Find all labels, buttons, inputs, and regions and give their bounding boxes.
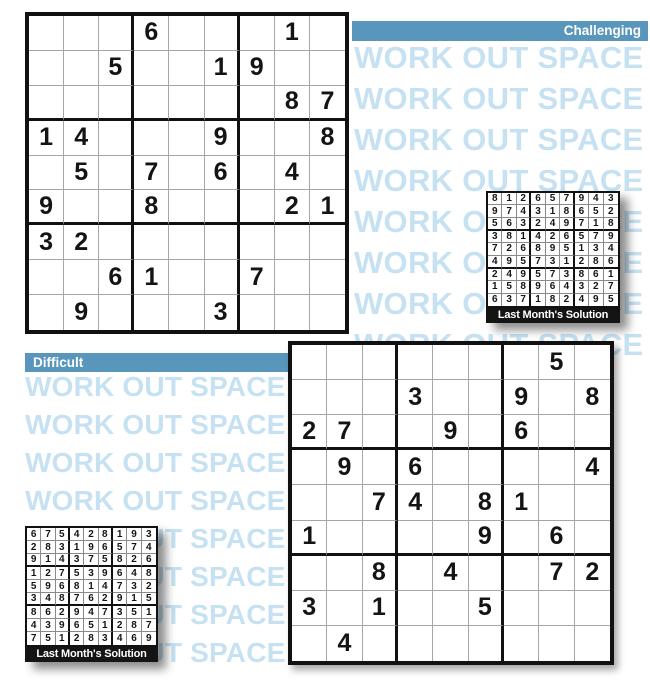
sudoku-cell[interactable] <box>205 86 240 121</box>
sudoku-cell[interactable] <box>240 86 275 121</box>
sudoku-cell: 2 <box>488 269 502 281</box>
sudoku-cell[interactable] <box>64 260 99 295</box>
watermark-text: WORK OUT SPACE <box>25 368 289 406</box>
sudoku-cell[interactable]: 9 <box>240 51 275 86</box>
sudoku-cell[interactable] <box>99 16 134 51</box>
sudoku-cell[interactable]: 8 <box>310 121 345 156</box>
sudoku-cell[interactable] <box>29 156 64 191</box>
sudoku-cell: 5 <box>517 256 531 269</box>
sudoku-cell: 4 <box>127 567 141 580</box>
sudoku-cell: 8 <box>604 218 618 231</box>
sudoku-cell[interactable] <box>433 450 468 485</box>
sudoku-cell[interactable]: 4 <box>327 626 362 661</box>
sudoku-cell: 7 <box>589 231 603 243</box>
sudoku-cell[interactable] <box>539 591 574 626</box>
sudoku-cell[interactable] <box>363 521 398 556</box>
sudoku-cell[interactable] <box>469 415 504 450</box>
solution-box-difficult: 6754281932831965749143758261275396485968… <box>25 526 158 662</box>
sudoku-cell[interactable]: 6 <box>205 156 240 191</box>
sudoku-cell: 2 <box>27 541 41 554</box>
solution-caption-challenging: Last Month's Solution <box>486 308 620 323</box>
sudoku-cell: 1 <box>99 619 113 632</box>
sudoku-cell[interactable] <box>205 225 240 260</box>
sudoku-cell: 3 <box>56 541 70 554</box>
sudoku-cell[interactable]: 9 <box>205 121 240 156</box>
sudoku-cell[interactable] <box>240 295 275 330</box>
sudoku-cell[interactable] <box>575 521 610 556</box>
sudoku-cell: 1 <box>560 256 574 269</box>
sudoku-cell[interactable]: 2 <box>64 225 99 260</box>
sudoku-cell[interactable] <box>363 380 398 415</box>
sudoku-cell: 1 <box>589 218 603 231</box>
sudoku-cell: 6 <box>27 528 41 541</box>
sudoku-cell[interactable] <box>504 450 539 485</box>
sudoku-cell: 4 <box>560 281 574 293</box>
sudoku-cell[interactable] <box>240 225 275 260</box>
watermark-text: WORK OUT SPACE <box>25 406 289 444</box>
sudoku-cell[interactable] <box>433 521 468 556</box>
sudoku-cell[interactable] <box>205 16 240 51</box>
sudoku-cell: 4 <box>70 528 84 541</box>
sudoku-cell[interactable] <box>169 51 204 86</box>
sudoku-cell[interactable] <box>134 51 169 86</box>
sudoku-cell: 1 <box>142 606 156 619</box>
sudoku-cell[interactable]: 3 <box>292 591 327 626</box>
sudoku-cell[interactable]: 6 <box>398 450 433 485</box>
sudoku-cell: 7 <box>502 205 516 217</box>
sudoku-cell: 5 <box>70 567 84 580</box>
sudoku-cell: 6 <box>41 606 55 619</box>
sudoku-cell[interactable]: 4 <box>433 556 468 591</box>
sudoku-cell[interactable] <box>99 190 134 225</box>
sudoku-cell: 5 <box>502 281 516 293</box>
sudoku-cell: 9 <box>575 193 589 205</box>
sudoku-cell[interactable]: 6 <box>504 415 539 450</box>
sudoku-cell[interactable] <box>469 450 504 485</box>
sudoku-cell[interactable] <box>539 415 574 450</box>
sudoku-cell[interactable] <box>504 345 539 380</box>
sudoku-cell: 3 <box>113 606 127 619</box>
sudoku-cell: 9 <box>517 269 531 281</box>
sudoku-cell[interactable] <box>398 556 433 591</box>
sudoku-cell: 6 <box>127 632 141 645</box>
sudoku-cell[interactable] <box>64 51 99 86</box>
sudoku-cell: 3 <box>502 294 516 306</box>
sudoku-cell[interactable]: 5 <box>469 591 504 626</box>
sudoku-cell[interactable] <box>29 51 64 86</box>
sudoku-cell: 7 <box>604 281 618 293</box>
sudoku-cell[interactable] <box>134 295 169 330</box>
sudoku-cell: 1 <box>113 528 127 541</box>
sudoku-cell: 5 <box>575 231 589 243</box>
sudoku-cell: 9 <box>84 541 98 554</box>
sudoku-cell[interactable] <box>327 521 362 556</box>
sudoku-cell[interactable]: 1 <box>29 121 64 156</box>
sudoku-cell[interactable] <box>398 345 433 380</box>
sudoku-cell[interactable]: 4 <box>575 450 610 485</box>
sudoku-cell: 7 <box>99 606 113 619</box>
sudoku-cell: 9 <box>546 243 560 255</box>
sudoku-cell: 2 <box>142 580 156 593</box>
sudoku-cell: 6 <box>488 294 502 306</box>
sudoku-cell: 8 <box>41 541 55 554</box>
sudoku-cell: 2 <box>560 294 574 306</box>
sudoku-cell: 4 <box>56 554 70 567</box>
sudoku-cell: 1 <box>127 593 141 606</box>
sudoku-cell[interactable]: 7 <box>134 156 169 191</box>
sudoku-cell[interactable] <box>539 450 574 485</box>
sudoku-cell[interactable] <box>292 485 327 520</box>
sudoku-cell: 7 <box>27 632 41 645</box>
sudoku-cell[interactable]: 7 <box>363 485 398 520</box>
sudoku-cell: 6 <box>589 269 603 281</box>
sudoku-cell[interactable]: 9 <box>64 295 99 330</box>
sudoku-cell[interactable] <box>539 485 574 520</box>
sudoku-cell[interactable] <box>539 380 574 415</box>
sudoku-cell: 5 <box>604 294 618 306</box>
sudoku-cell[interactable] <box>575 626 610 661</box>
sudoku-cell: 6 <box>531 193 545 205</box>
sudoku-cell[interactable] <box>134 225 169 260</box>
sudoku-cell[interactable]: 2 <box>275 190 310 225</box>
watermark-text: WORK OUT SPACE <box>354 78 650 119</box>
sudoku-cell: 1 <box>531 294 545 306</box>
sudoku-cell: 2 <box>546 231 560 243</box>
sudoku-cell[interactable] <box>363 626 398 661</box>
sudoku-cell: 8 <box>56 593 70 606</box>
sudoku-cell: 3 <box>84 567 98 580</box>
sudoku-cell: 3 <box>70 554 84 567</box>
sudoku-cell[interactable] <box>292 380 327 415</box>
sudoku-cell: 8 <box>546 294 560 306</box>
sudoku-cell: 1 <box>546 205 560 217</box>
sudoku-cell: 5 <box>142 593 156 606</box>
sudoku-cell: 7 <box>575 218 589 231</box>
sudoku-cell[interactable]: 1 <box>205 51 240 86</box>
sudoku-cell[interactable] <box>29 16 64 51</box>
sudoku-cell[interactable] <box>64 16 99 51</box>
sudoku-cell: 8 <box>560 205 574 217</box>
sudoku-cell[interactable]: 6 <box>99 260 134 295</box>
sudoku-cell[interactable] <box>169 260 204 295</box>
sudoku-cell: 8 <box>27 606 41 619</box>
sudoku-cell[interactable] <box>169 295 204 330</box>
sudoku-cell[interactable] <box>205 190 240 225</box>
sudoku-cell[interactable] <box>575 485 610 520</box>
sudoku-cell: 9 <box>502 256 516 269</box>
sudoku-cell[interactable] <box>310 51 345 86</box>
sudoku-cell[interactable]: 1 <box>134 260 169 295</box>
sudoku-cell: 7 <box>546 269 560 281</box>
sudoku-cell[interactable] <box>504 556 539 591</box>
sudoku-cell[interactable] <box>327 380 362 415</box>
sudoku-cell: 2 <box>502 243 516 255</box>
sudoku-cell: 7 <box>531 256 545 269</box>
sudoku-cell: 9 <box>70 606 84 619</box>
sudoku-cell[interactable] <box>327 556 362 591</box>
sudoku-cell[interactable] <box>539 626 574 661</box>
sudoku-cell[interactable] <box>433 380 468 415</box>
sudoku-cell[interactable]: 2 <box>292 415 327 450</box>
sudoku-cell[interactable]: 7 <box>327 415 362 450</box>
sudoku-cell[interactable] <box>398 415 433 450</box>
sudoku-cell: 9 <box>142 632 156 645</box>
sudoku-cell: 8 <box>502 231 516 243</box>
sudoku-cell[interactable]: 9 <box>29 190 64 225</box>
sudoku-cell: 5 <box>84 619 98 632</box>
sudoku-cell[interactable] <box>292 345 327 380</box>
sudoku-cell: 4 <box>84 606 98 619</box>
sudoku-cell[interactable] <box>310 16 345 51</box>
sudoku-cell[interactable] <box>433 591 468 626</box>
sudoku-cell[interactable] <box>469 380 504 415</box>
sudoku-cell: 5 <box>560 243 574 255</box>
sudoku-cell: 9 <box>113 593 127 606</box>
sudoku-cell[interactable] <box>310 156 345 191</box>
sudoku-cell[interactable]: 5 <box>539 345 574 380</box>
sudoku-cell[interactable]: 5 <box>64 156 99 191</box>
sudoku-cell[interactable] <box>469 626 504 661</box>
sudoku-cell[interactable] <box>504 591 539 626</box>
sudoku-cell: 2 <box>575 256 589 269</box>
sudoku-cell[interactable]: 1 <box>504 485 539 520</box>
sudoku-cell: 8 <box>113 554 127 567</box>
sudoku-cell[interactable] <box>29 86 64 121</box>
sudoku-cell[interactable] <box>469 556 504 591</box>
sudoku-cell: 8 <box>70 580 84 593</box>
sudoku-cell[interactable] <box>363 450 398 485</box>
sudoku-cell[interactable]: 7 <box>310 86 345 121</box>
watermark-text: WORK OUT SPACE <box>354 119 650 160</box>
sudoku-cell[interactable] <box>398 626 433 661</box>
sudoku-cell[interactable]: 9 <box>469 521 504 556</box>
sudoku-cell: 3 <box>531 205 545 217</box>
sudoku-cell: 4 <box>517 205 531 217</box>
sudoku-cell: 5 <box>589 205 603 217</box>
sudoku-cell: 4 <box>546 218 560 231</box>
sudoku-cell: 3 <box>560 269 574 281</box>
sudoku-cell[interactable]: 5 <box>99 51 134 86</box>
watermark-text: WORK OUT SPACE <box>25 444 289 482</box>
sudoku-cell: 2 <box>517 193 531 205</box>
sudoku-cell: 6 <box>560 231 574 243</box>
sudoku-cell[interactable] <box>292 556 327 591</box>
sudoku-cell[interactable] <box>64 86 99 121</box>
sudoku-cell: 2 <box>604 205 618 217</box>
sudoku-cell[interactable] <box>240 121 275 156</box>
sudoku-cell: 1 <box>488 281 502 293</box>
sudoku-cell[interactable] <box>504 626 539 661</box>
sudoku-cell[interactable]: 1 <box>310 190 345 225</box>
sudoku-cell[interactable] <box>29 295 64 330</box>
sudoku-cell[interactable] <box>99 225 134 260</box>
sudoku-cell: 7 <box>41 528 55 541</box>
sudoku-cell[interactable]: 8 <box>469 485 504 520</box>
sudoku-cell[interactable] <box>327 345 362 380</box>
sudoku-cell[interactable] <box>99 121 134 156</box>
sudoku-cell[interactable] <box>433 345 468 380</box>
sudoku-cell: 6 <box>99 541 113 554</box>
difficulty-bar-difficult: Difficult <box>25 353 288 372</box>
sudoku-cell: 2 <box>589 281 603 293</box>
sudoku-cell[interactable] <box>433 485 468 520</box>
sudoku-cell: 1 <box>517 231 531 243</box>
sudoku-cell[interactable]: 4 <box>64 121 99 156</box>
sudoku-cell[interactable]: 1 <box>275 16 310 51</box>
sudoku-cell: 8 <box>531 243 545 255</box>
sudoku-cell: 9 <box>41 580 55 593</box>
sudoku-cell: 9 <box>56 619 70 632</box>
sudoku-cell[interactable] <box>575 591 610 626</box>
sudoku-cell: 5 <box>41 632 55 645</box>
sudoku-cell[interactable]: 9 <box>504 380 539 415</box>
sudoku-cell[interactable] <box>327 591 362 626</box>
sudoku-cell: 6 <box>56 580 70 593</box>
sudoku-cell: 2 <box>127 554 141 567</box>
sudoku-cell[interactable] <box>275 121 310 156</box>
sudoku-cell: 5 <box>99 554 113 567</box>
sudoku-cell[interactable] <box>169 225 204 260</box>
sudoku-cell[interactable] <box>169 190 204 225</box>
sudoku-cell: 9 <box>99 567 113 580</box>
sudoku-cell[interactable]: 9 <box>327 450 362 485</box>
sudoku-cell[interactable] <box>575 415 610 450</box>
sudoku-cell: 3 <box>604 193 618 205</box>
sudoku-cell: 8 <box>99 528 113 541</box>
sudoku-cell: 3 <box>127 580 141 593</box>
sudoku-cell: 9 <box>604 231 618 243</box>
sudoku-cell[interactable] <box>275 51 310 86</box>
sudoku-cell[interactable] <box>169 156 204 191</box>
sudoku-cell[interactable]: 9 <box>433 415 468 450</box>
solution-caption-difficult: Last Month's Solution <box>25 647 158 662</box>
sudoku-cell: 2 <box>70 632 84 645</box>
sudoku-cell[interactable] <box>275 260 310 295</box>
sudoku-cell[interactable] <box>575 345 610 380</box>
sudoku-cell: 3 <box>99 632 113 645</box>
sudoku-cell[interactable] <box>310 225 345 260</box>
sudoku-cell: 5 <box>531 269 545 281</box>
sudoku-cell: 8 <box>575 269 589 281</box>
sudoku-cell[interactable]: 3 <box>29 225 64 260</box>
sudoku-cell: 1 <box>41 554 55 567</box>
sudoku-cell: 7 <box>127 541 141 554</box>
sudoku-cell[interactable]: 3 <box>398 380 433 415</box>
sudoku-cell[interactable] <box>433 626 468 661</box>
sudoku-cell: 6 <box>546 281 560 293</box>
sudoku-cell[interactable]: 8 <box>575 380 610 415</box>
sudoku-cell: 9 <box>27 554 41 567</box>
sudoku-cell: 8 <box>589 256 603 269</box>
sudoku-cell: 1 <box>56 632 70 645</box>
sudoku-cell: 3 <box>27 593 41 606</box>
sudoku-cell[interactable]: 8 <box>275 86 310 121</box>
sudoku-cell: 3 <box>142 528 156 541</box>
sudoku-cell: 1 <box>27 567 41 580</box>
sudoku-cell[interactable]: 2 <box>575 556 610 591</box>
sudoku-cell[interactable] <box>240 190 275 225</box>
sudoku-cell[interactable] <box>310 295 345 330</box>
sudoku-cell[interactable] <box>99 295 134 330</box>
sudoku-cell[interactable]: 1 <box>363 591 398 626</box>
sudoku-cell: 6 <box>502 218 516 231</box>
sudoku-cell[interactable] <box>134 121 169 156</box>
sudoku-cell[interactable] <box>64 190 99 225</box>
sudoku-cell: 7 <box>56 567 70 580</box>
sudoku-cell[interactable] <box>398 591 433 626</box>
sudoku-cell[interactable] <box>169 86 204 121</box>
sudoku-cell: 9 <box>531 281 545 293</box>
sudoku-cell[interactable] <box>205 260 240 295</box>
sudoku-cell: 7 <box>113 580 127 593</box>
sudoku-cell: 6 <box>84 593 98 606</box>
solution-grid-challenging: 8126579439743186525632497183814265797268… <box>486 191 620 308</box>
sudoku-cell: 2 <box>84 528 98 541</box>
sudoku-cell: 5 <box>488 218 502 231</box>
sudoku-cell[interactable] <box>363 415 398 450</box>
sudoku-cell[interactable] <box>275 295 310 330</box>
sudoku-cell[interactable]: 1 <box>292 521 327 556</box>
sudoku-cell[interactable]: 4 <box>275 156 310 191</box>
sudoku-cell[interactable] <box>240 156 275 191</box>
sudoku-cell: 4 <box>113 632 127 645</box>
sudoku-cell[interactable] <box>169 121 204 156</box>
sudoku-cell: 4 <box>604 243 618 255</box>
sudoku-cell[interactable] <box>398 521 433 556</box>
sudoku-cell[interactable] <box>29 260 64 295</box>
sudoku-cell: 5 <box>27 580 41 593</box>
sudoku-cell[interactable] <box>99 156 134 191</box>
sudoku-cell[interactable] <box>99 86 134 121</box>
sudoku-cell[interactable]: 7 <box>240 260 275 295</box>
sudoku-cell[interactable] <box>292 626 327 661</box>
sudoku-cell: 4 <box>27 619 41 632</box>
sudoku-cell[interactable]: 6 <box>134 16 169 51</box>
sudoku-cell: 3 <box>575 281 589 293</box>
sudoku-cell: 1 <box>604 269 618 281</box>
sudoku-cell: 8 <box>488 193 502 205</box>
sudoku-cell: 9 <box>488 205 502 217</box>
sudoku-cell: 7 <box>70 593 84 606</box>
sudoku-cell[interactable] <box>363 345 398 380</box>
sudoku-cell[interactable] <box>292 450 327 485</box>
sudoku-cell[interactable] <box>134 86 169 121</box>
sudoku-cell[interactable]: 8 <box>134 190 169 225</box>
sudoku-cell[interactable] <box>469 345 504 380</box>
sudoku-cell[interactable] <box>327 485 362 520</box>
sudoku-cell: 1 <box>70 541 84 554</box>
sudoku-cell[interactable]: 8 <box>363 556 398 591</box>
sudoku-cell: 7 <box>560 193 574 205</box>
sudoku-cell: 4 <box>502 269 516 281</box>
sudoku-cell[interactable] <box>240 16 275 51</box>
sudoku-cell: 3 <box>517 218 531 231</box>
sudoku-cell[interactable] <box>169 16 204 51</box>
sudoku-cell: 5 <box>127 606 141 619</box>
sudoku-cell[interactable] <box>310 260 345 295</box>
sudoku-cell[interactable] <box>504 521 539 556</box>
sudoku-cell: 7 <box>142 619 156 632</box>
puzzle-grid-difficult: 53982796964748119684723154 <box>288 341 614 665</box>
sudoku-cell: 6 <box>113 567 127 580</box>
sudoku-cell[interactable]: 6 <box>539 521 574 556</box>
sudoku-cell: 2 <box>56 606 70 619</box>
sudoku-cell[interactable] <box>275 225 310 260</box>
sudoku-cell[interactable]: 7 <box>539 556 574 591</box>
sudoku-cell[interactable]: 4 <box>398 485 433 520</box>
sudoku-cell: 7 <box>84 554 98 567</box>
sudoku-cell[interactable]: 3 <box>205 295 240 330</box>
